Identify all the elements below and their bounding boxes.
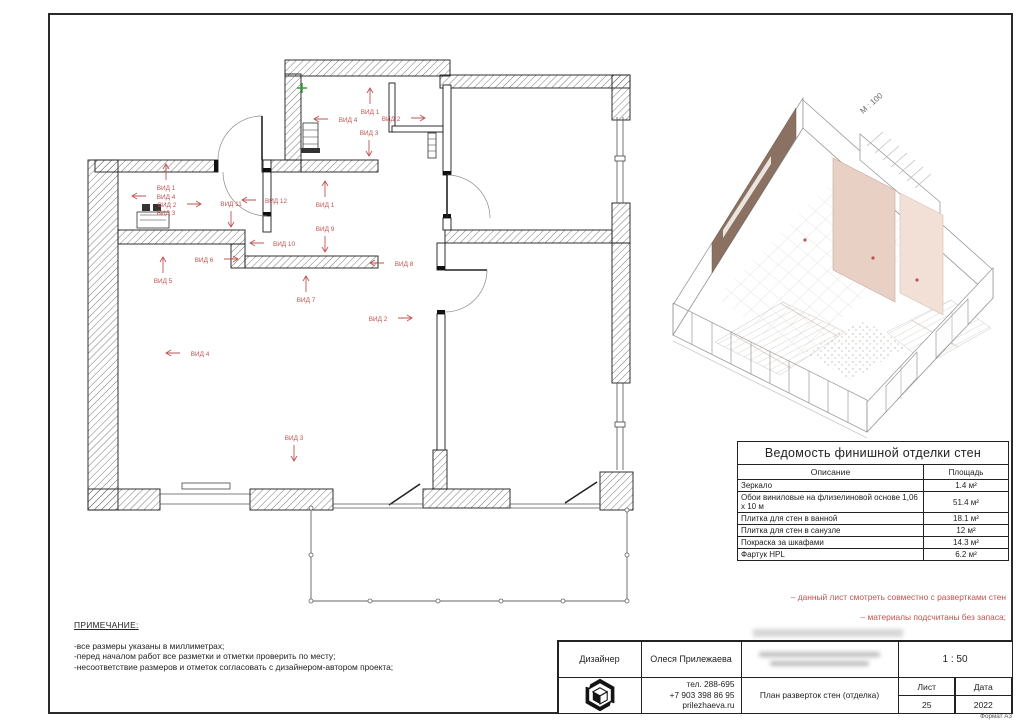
view-marker-label: ВИД 1 (157, 185, 176, 192)
table-row: Плитка для стен в ванной18.1 м² (738, 513, 1009, 525)
project-address-redacted (741, 641, 899, 678)
finish-table-col-area: Площадь (924, 465, 1009, 480)
view-marker-label: ВИД 1 (361, 109, 380, 116)
drawing-title: План разверток стен (отделка) (741, 677, 899, 714)
view-marker-arrow (322, 181, 328, 197)
balcony-door-leaf (565, 482, 597, 503)
date-label: Дата (955, 677, 1012, 696)
table-row: Фартук HPL6.2 м² (738, 549, 1009, 561)
axonometric-view: М : 100 (655, 80, 1015, 450)
view-marker-label: ВИД 4 (339, 117, 358, 124)
axon-scale-label: М : 100 (858, 91, 884, 116)
balcony-door-leaf (389, 484, 420, 505)
note-line: -несоответствие размеров и отметок согла… (74, 662, 393, 673)
view-marker-arrow (160, 257, 166, 273)
contact-site: prilezhaeva.ru (682, 700, 734, 711)
title-block: Дизайнер Олеся Прилежаева 1 : 50 тел. 28… (557, 640, 1013, 714)
view-marker-label: ВИД 6 (195, 257, 214, 264)
view-marker-arrow (314, 116, 328, 122)
view-marker-arrow (322, 236, 328, 252)
notes-title: ПРИМЕЧАНИЕ: (74, 620, 393, 631)
walls-hatched (88, 60, 633, 510)
date-value: 2022 (955, 695, 1012, 713)
sheet-number: 25 (898, 695, 955, 713)
notes-block: ПРИМЕЧАНИЕ: -все размеры указаны в милли… (74, 620, 393, 672)
view-marker-arrow (367, 88, 373, 104)
view-marker-arrow (187, 201, 201, 207)
designer-name: Олеся Прилежаева (641, 641, 742, 678)
designer-logo-icon (582, 677, 618, 713)
finish-table-col-description: Описание (738, 465, 924, 480)
finish-schedule-table: Ведомость финишной отделки стен Описание… (737, 441, 1009, 561)
finish-table-title: Ведомость финишной отделки стен (738, 442, 1009, 465)
view-marker-label: ВИД 3 (360, 130, 379, 137)
table-row: Зеркало1.4 м² (738, 480, 1009, 492)
finish-table-rows: Зеркало1.4 м²Обои виниловые на флизелино… (738, 480, 1009, 561)
view-marker-label: ВИД 3 (285, 435, 304, 442)
red-note-line: – материалы подсчитаны без запаса; (791, 612, 1006, 622)
view-marker-label: ВИД 2 (158, 202, 177, 209)
red-note-line: – данный лист смотреть совместно с разве… (791, 592, 1006, 602)
floor-plan: ВИД 1ВИД 2ВИД 3ВИД 4ВИД 1ВИД 4ВИД 2ВИД 3… (80, 50, 640, 610)
view-marker-arrow (132, 193, 146, 199)
view-marker-label: ВИД 8 (395, 261, 414, 268)
table-row: Обои виниловые на флизелиновой основе 1,… (738, 492, 1009, 513)
view-marker-label: ВИД 3 (157, 210, 176, 217)
view-markers-group: ВИД 1ВИД 2ВИД 3ВИД 4ВИД 1ВИД 4ВИД 2ВИД 3… (132, 88, 425, 461)
view-marker-label: ВИД 2 (369, 316, 388, 323)
redacted-address-strip (753, 629, 903, 637)
drawing-sheet: ВИД 1ВИД 2ВИД 3ВИД 4ВИД 1ВИД 4ВИД 2ВИД 3… (0, 0, 1024, 724)
view-marker-arrow (366, 140, 372, 156)
view-marker-label: ВИД 11 (220, 201, 242, 208)
view-marker-label: ВИД 7 (297, 297, 316, 304)
doors (218, 116, 597, 505)
table-row: Плитка для стен в санузле12 м² (738, 525, 1009, 537)
view-marker-arrow (242, 197, 256, 203)
view-marker-arrow (228, 211, 234, 227)
view-marker-label: ВИД 4 (157, 194, 176, 201)
red-notes: – данный лист смотреть совместно с разве… (791, 592, 1006, 632)
view-marker-label: ВИД 4 (191, 351, 210, 358)
format-label: Формат А3 (980, 713, 1012, 720)
balcony-railing (309, 506, 629, 603)
view-marker-arrow (250, 240, 264, 246)
view-marker-label: ВИД 9 (316, 226, 335, 233)
view-marker-label: ВИД 1 (316, 202, 335, 209)
note-line: -перед началом работ все разметки и отме… (74, 651, 393, 662)
view-marker-label: ВИД 12 (265, 198, 288, 205)
view-marker-arrow (166, 350, 180, 356)
view-marker-arrow (411, 115, 425, 121)
drawing-scale: 1 : 50 (898, 641, 1013, 678)
table-row: Покраска за шкафами14.3 м² (738, 537, 1009, 549)
designer-contacts: тел. 288-695 +7 903 398 86 95 prilezhaev… (641, 677, 742, 714)
view-marker-arrow (291, 445, 297, 461)
view-marker-label: ВИД 10 (273, 241, 296, 248)
view-marker-label: ВИД 5 (154, 278, 173, 285)
view-marker-label: ВИД 2 (382, 116, 401, 123)
contact-mobile: +7 903 398 86 95 (670, 690, 735, 701)
radiator (428, 133, 436, 158)
logo-cell (558, 677, 642, 714)
note-line: -все размеры указаны в миллиметрах; (74, 641, 393, 652)
sheet-label: Лист (898, 677, 955, 696)
door-jambs (214, 160, 451, 314)
view-marker-arrow (303, 276, 309, 292)
view-marker-arrow (398, 315, 412, 321)
sheet-date-grid: Лист Дата 25 2022 (898, 677, 1013, 714)
designer-label: Дизайнер (558, 641, 642, 678)
contact-phone: тел. 288-695 (687, 679, 735, 690)
windows (160, 117, 625, 508)
